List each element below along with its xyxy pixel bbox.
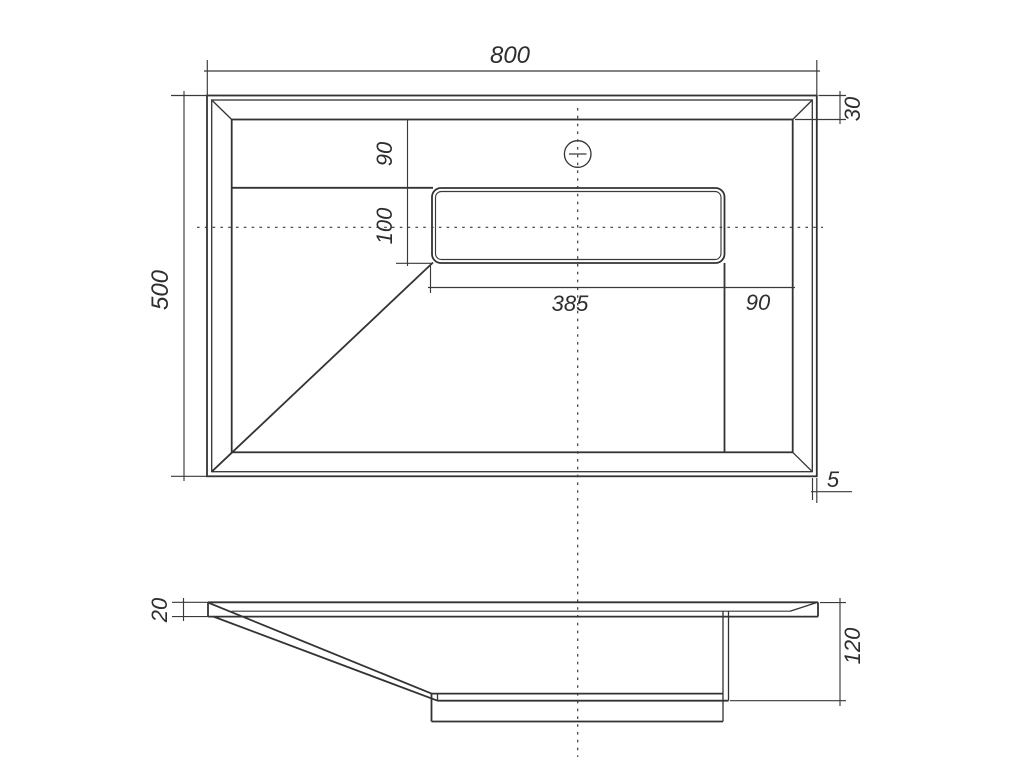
dimension-plan-depth: 500 <box>147 91 208 481</box>
dim-plan-width-label: 800 <box>490 42 531 69</box>
dim-plan-depth-label: 500 <box>147 269 174 310</box>
basin-outline <box>207 96 817 477</box>
dimension-deck-thickness: 20 <box>147 597 210 623</box>
basin-inner-rect <box>232 120 793 453</box>
dimension-back-ledge-and-slot-depth: 90 100 <box>372 120 433 267</box>
dim-rim-gap-label: 5 <box>827 467 840 492</box>
section-outline <box>208 602 818 721</box>
rim-rect <box>212 100 813 472</box>
top-view: 800 500 30 90 100 385 9 <box>147 42 865 757</box>
bowl-slope-bottom-line <box>214 617 438 701</box>
dim-slot-width-label: 385 <box>552 291 589 316</box>
dimension-slot-width-row: 385 90 <box>428 266 795 316</box>
dim-back-ledge-label: 90 <box>372 141 397 166</box>
dim-edge-to-basin-label: 30 <box>840 96 865 121</box>
corner-chamfer-top-left <box>212 100 232 120</box>
side-view: 20 120 <box>147 597 865 721</box>
dim-slot-to-right-label: 90 <box>746 290 771 315</box>
dim-deck-thickness-label: 20 <box>147 597 172 623</box>
technical-drawing: 800 500 30 90 100 385 9 <box>0 0 1024 768</box>
dimension-plan-width: 800 <box>204 42 820 96</box>
right-bevel-line <box>790 603 817 612</box>
slope-diagonal-line <box>212 263 433 472</box>
dim-slot-depth-label: 100 <box>372 207 397 244</box>
dimension-bowl-depth: 120 <box>730 598 865 706</box>
dim-bowl-depth-label: 120 <box>840 627 865 664</box>
corner-chamfer-top-right <box>793 100 813 120</box>
corner-chamfer-bottom-right <box>793 452 813 471</box>
drawing-canvas: 800 500 30 90 100 385 9 <box>0 0 1024 768</box>
